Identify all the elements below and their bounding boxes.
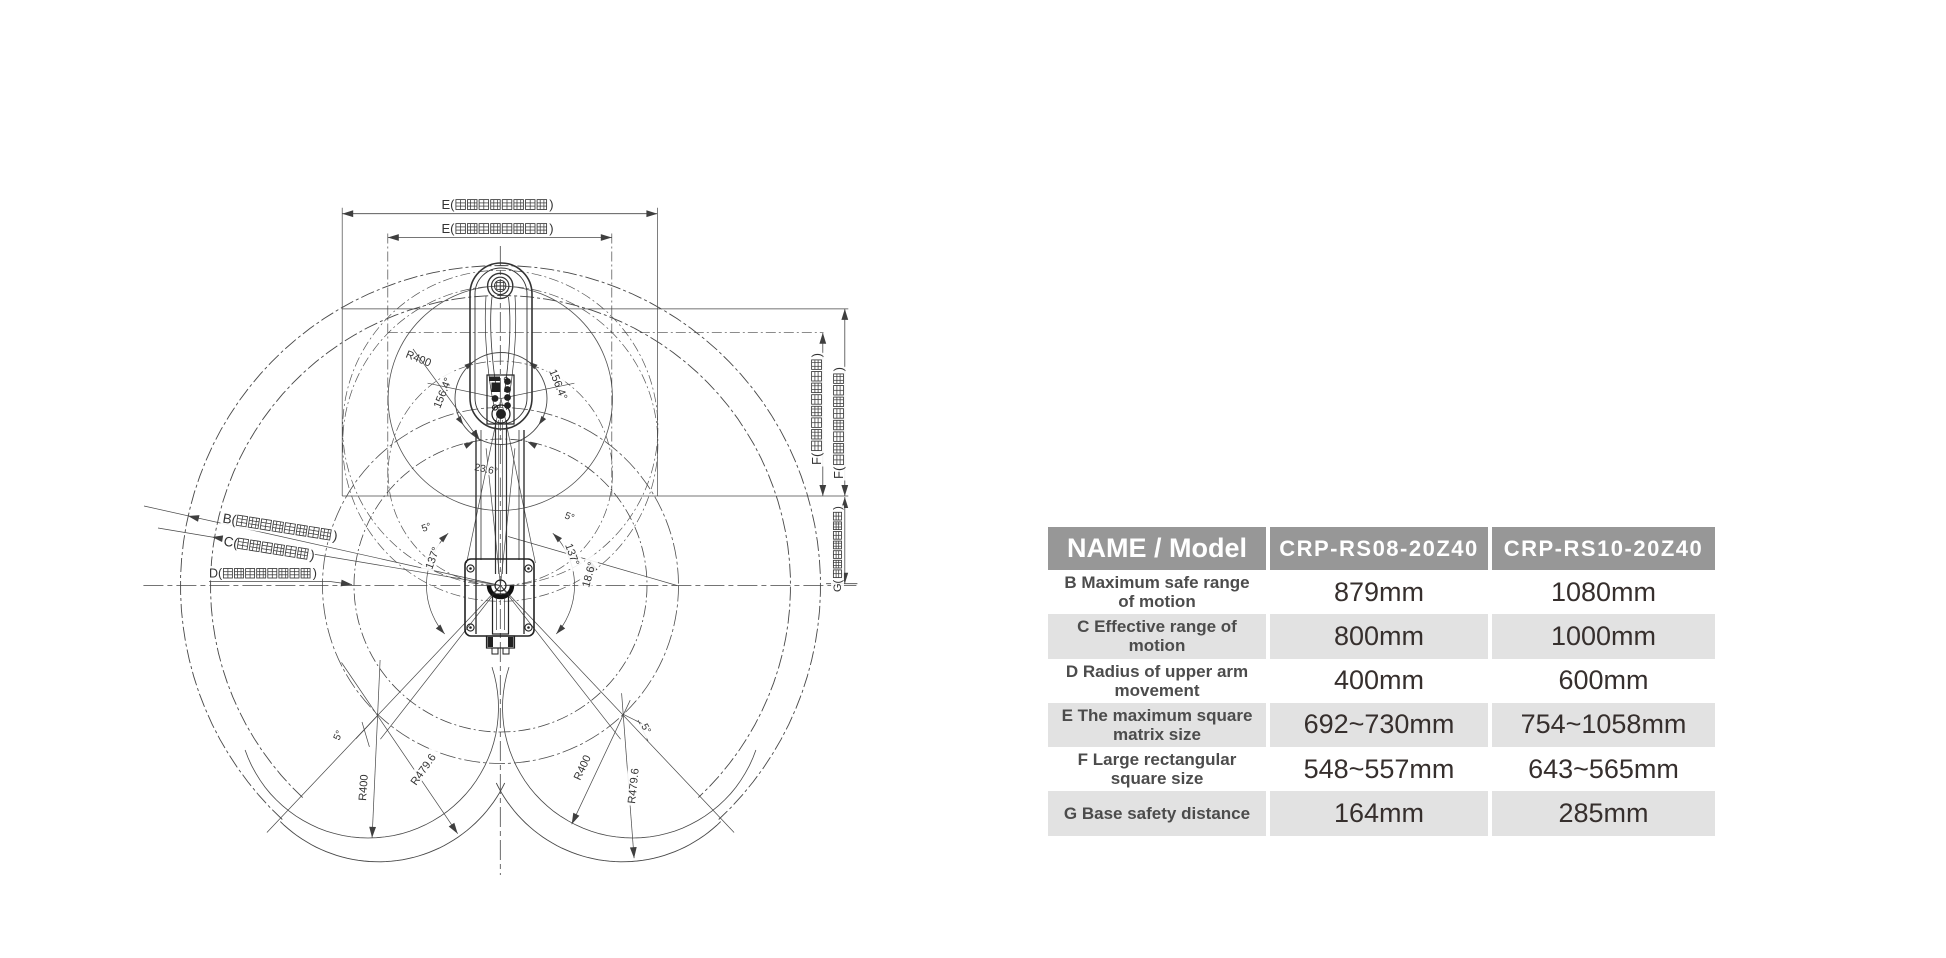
svg-text:F(: F( [809,452,824,465]
svg-text:137°: 137° [424,546,443,571]
svg-text:): ) [332,528,339,544]
svg-text:G(: G( [832,579,844,592]
svg-text:): ) [549,197,553,212]
svg-text:E(: E( [442,197,456,212]
svg-text:): ) [309,547,316,563]
svg-text:): ) [313,567,317,581]
svg-text:R400: R400 [572,753,594,782]
svg-text:E(: E( [442,221,456,236]
svg-text:R479.6: R479.6 [626,768,642,805]
svg-text:): ) [549,221,553,236]
svg-text:R400: R400 [357,774,371,801]
svg-text:): ) [831,367,846,371]
svg-text:R400: R400 [404,349,433,370]
svg-text:137°: 137° [562,542,581,567]
svg-text:): ) [832,506,844,510]
svg-text:): ) [809,353,824,357]
svg-text:F(: F( [831,466,846,479]
svg-text:D(: D( [209,567,223,581]
